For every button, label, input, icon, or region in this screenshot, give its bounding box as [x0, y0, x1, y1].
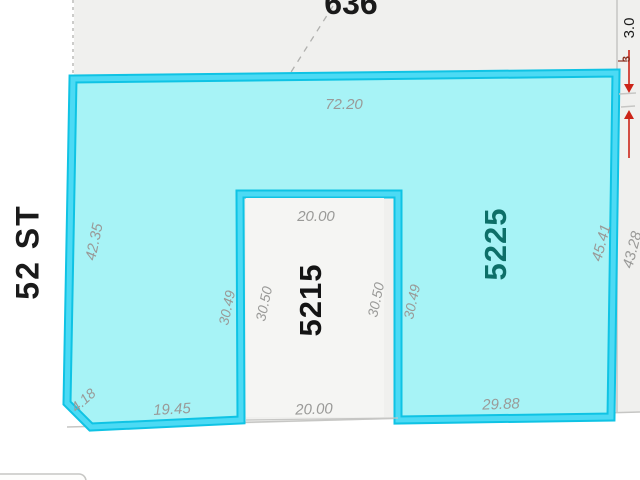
street-label: 52 ST	[9, 204, 45, 299]
dim-gap-callout-small: 3	[621, 56, 633, 62]
partial-parcel-bottom-left	[0, 474, 86, 480]
dimension-tick-lower	[621, 106, 635, 107]
dim-bottom-left-edge: 19.45	[153, 400, 192, 419]
block-number-label: 636	[324, 0, 377, 21]
parcel-5215-label: 5215	[293, 264, 328, 337]
plat-map-viewport: 52 ST 636 5215 5225 72.20 42.35 30.49 30…	[0, 0, 640, 480]
dim-bottom-right-edge: 29.88	[481, 395, 521, 413]
dim-inner-bottom: 20.00	[294, 400, 334, 418]
dimension-tick-upper	[619, 93, 636, 94]
parcel-5225-label: 5225	[478, 208, 513, 281]
dim-gap-callout: 3.0	[621, 18, 638, 39]
dim-top-edge: 72.20	[325, 96, 363, 113]
map-canvas: 52 ST 636 5215 5225 72.20 42.35 30.49 30…	[0, 0, 640, 480]
dim-inner-top: 20.00	[296, 208, 335, 225]
